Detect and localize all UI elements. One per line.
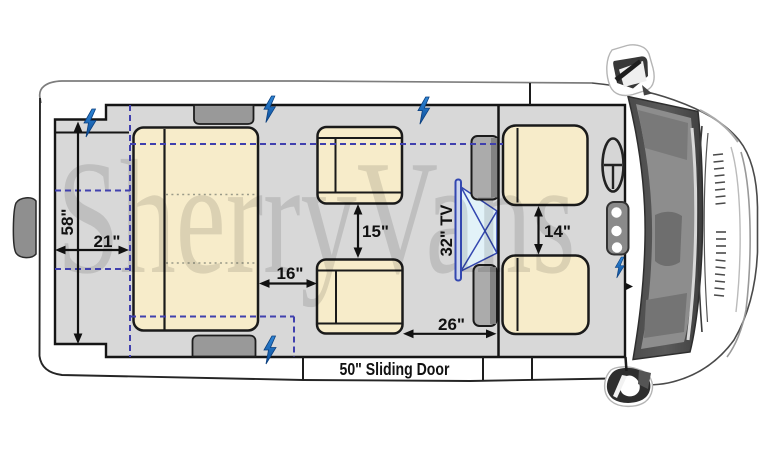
svg-text:15": 15" (362, 222, 389, 241)
svg-text:21": 21" (94, 232, 121, 251)
svg-text:16": 16" (277, 264, 304, 283)
svg-text:14": 14" (544, 222, 571, 241)
svg-text:58": 58" (58, 209, 77, 236)
svg-text:SherryVans: SherryVans (57, 128, 575, 308)
svg-text:26": 26" (438, 315, 465, 334)
svg-text:50" Sliding Door: 50" Sliding Door (340, 359, 450, 379)
svg-text:32" TV: 32" TV (438, 205, 456, 257)
